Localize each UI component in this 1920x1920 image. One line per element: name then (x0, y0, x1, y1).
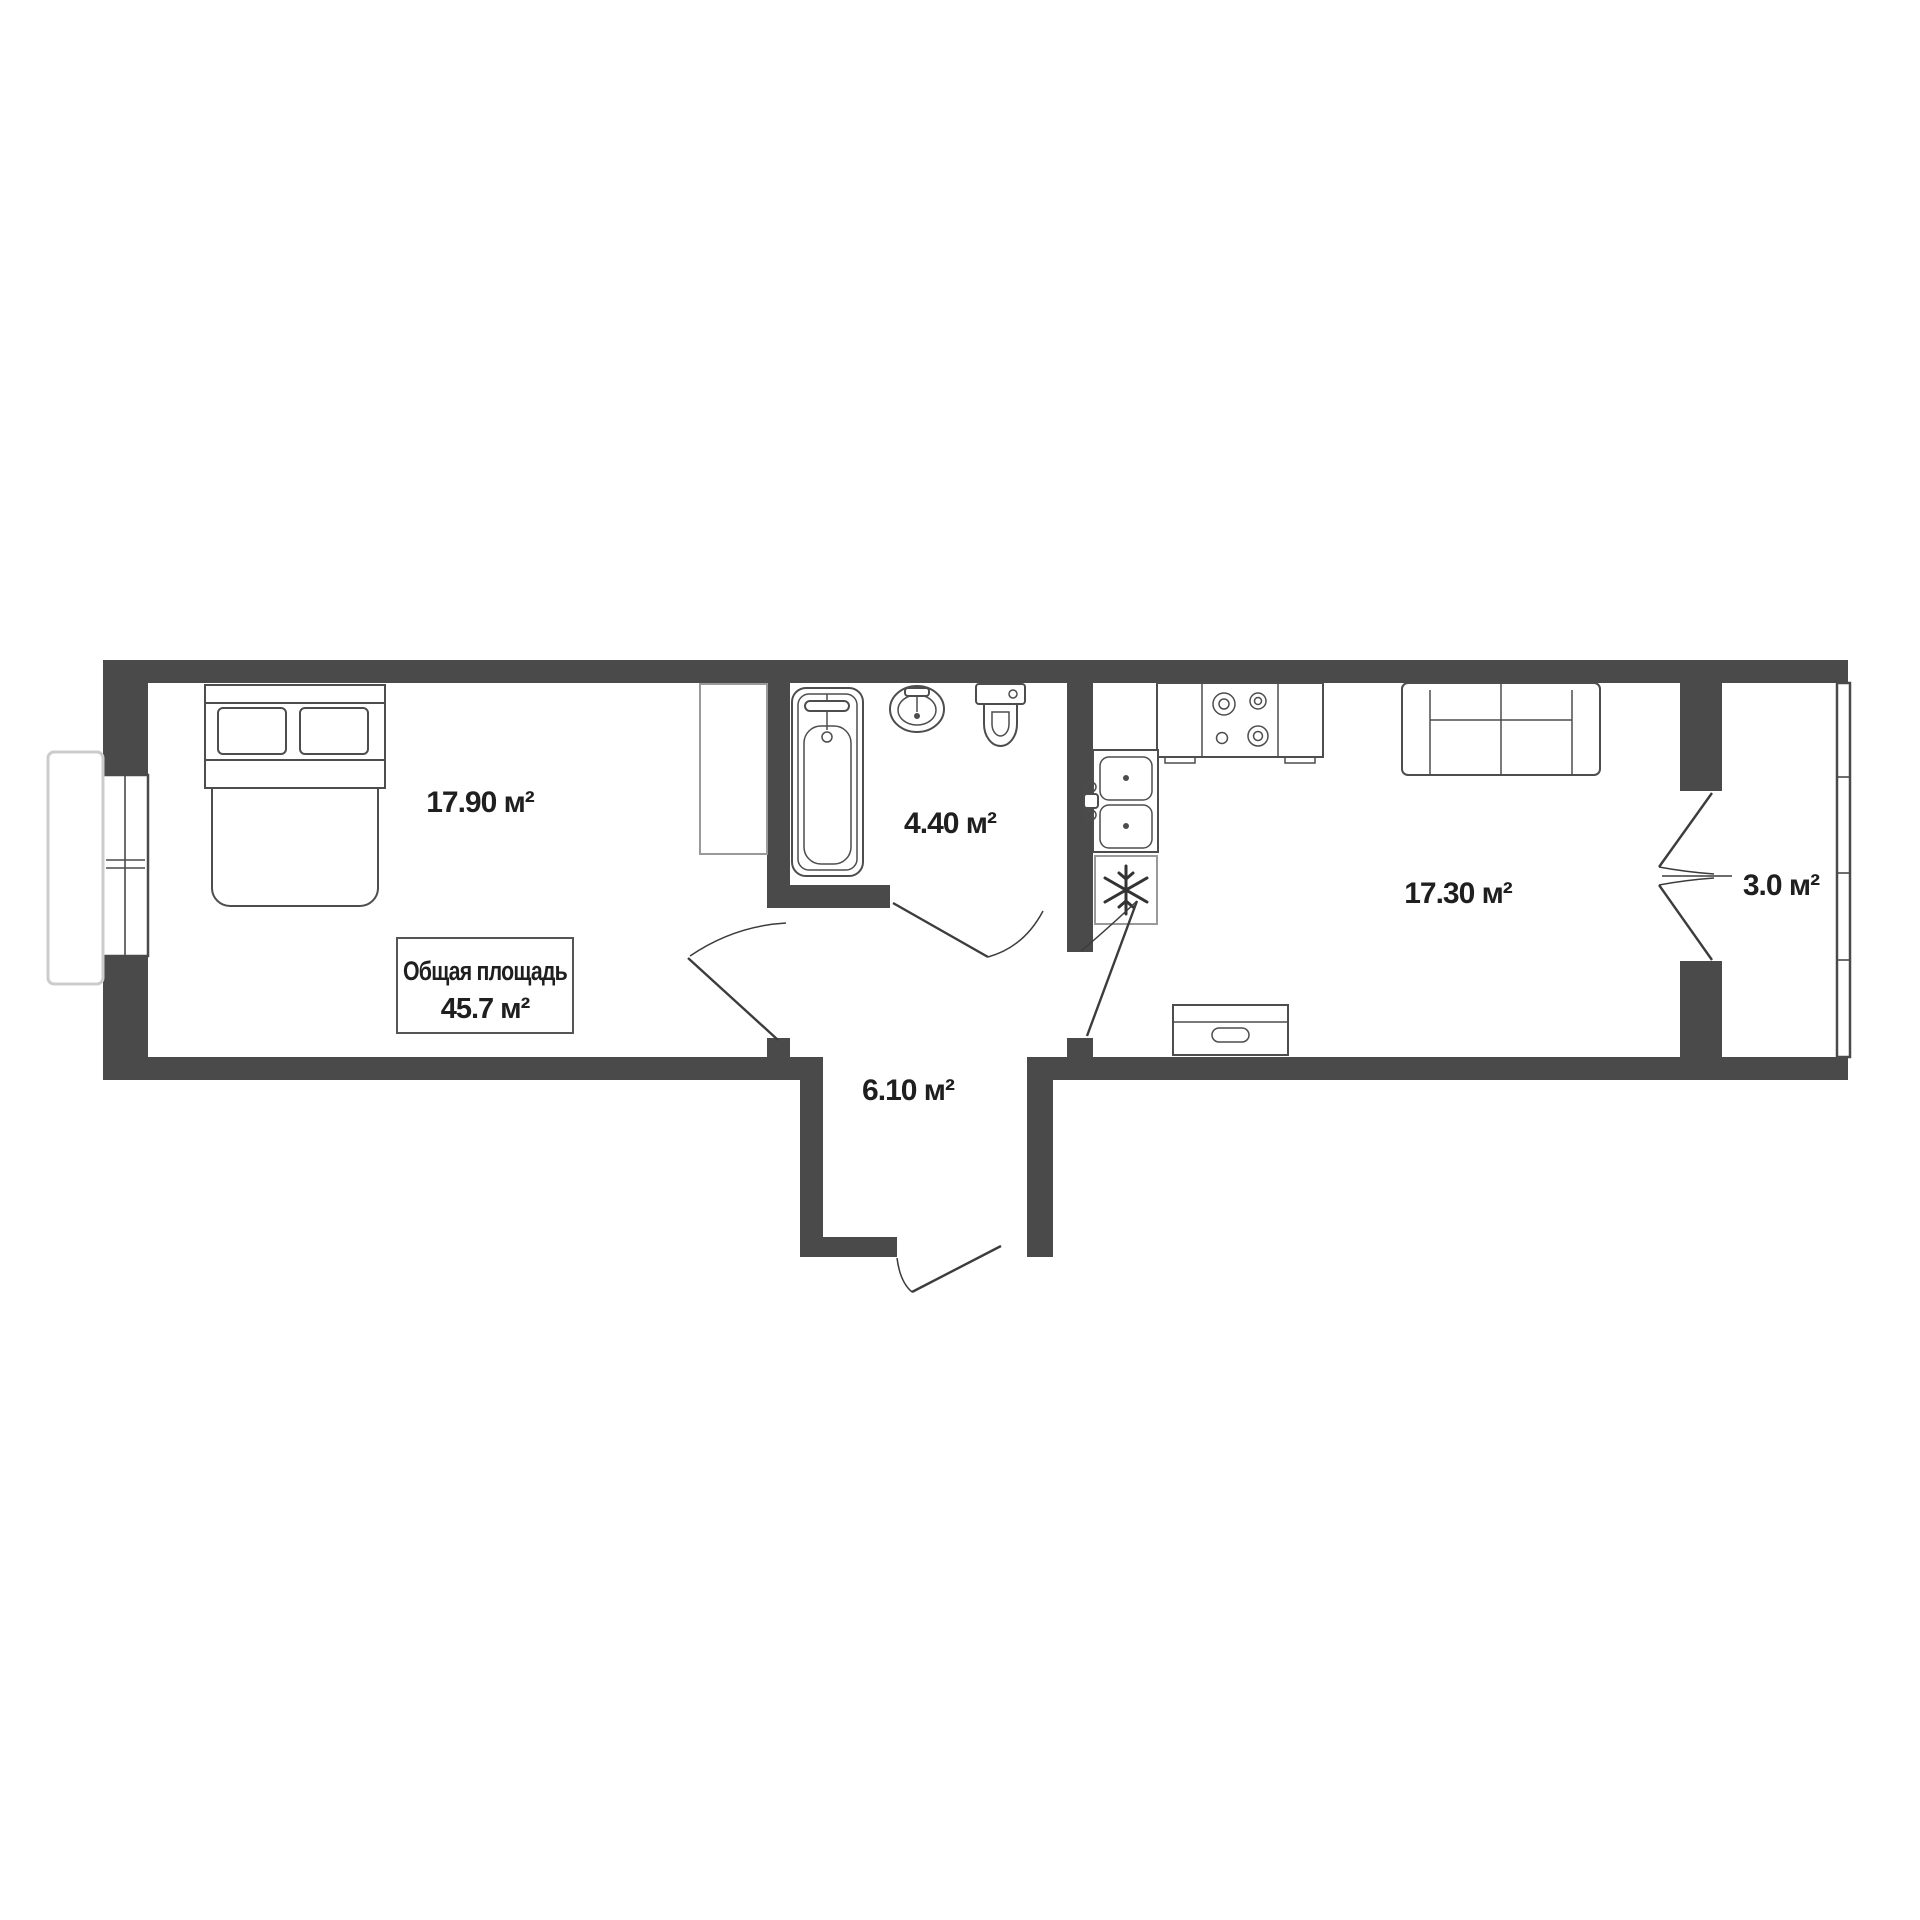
entrance-door (897, 1246, 1001, 1292)
fridge (1095, 856, 1157, 924)
wall-bedroom-door-jamb (767, 1038, 790, 1058)
pillow (218, 708, 286, 754)
wall-left-upper (103, 660, 148, 775)
wall-bottom-right (1027, 1057, 1848, 1080)
bathtub-faucet-icon (805, 701, 849, 711)
balcony-window (1837, 683, 1850, 1057)
wardrobe (700, 684, 767, 854)
floor-plan: 17.90 м² 4.40 м² 6.10 м² 17.30 м² 3.0 м²… (0, 0, 1920, 1920)
bathroom-door (893, 903, 1043, 957)
floor-plan-svg: 17.90 м² 4.40 м² 6.10 м² 17.30 м² 3.0 м²… (0, 0, 1920, 1920)
wall-balcony-stub-lower (1680, 961, 1722, 1080)
bedroom-area-label: 17.90 м² (426, 786, 535, 819)
wall-bathroom-bottom (767, 885, 890, 908)
bedroom-door (688, 923, 786, 1040)
tv-stand (1173, 1005, 1288, 1055)
wall-balcony-stub-upper (1680, 660, 1722, 791)
bathroom-sink (890, 686, 944, 732)
total-area-title: Общая площадь (403, 956, 567, 986)
wall-left-lower (103, 956, 148, 1080)
bathroom-area-label: 4.40 м² (904, 807, 997, 840)
wall-hall-left (800, 1080, 823, 1257)
wall-bottom-left (103, 1057, 823, 1080)
pillow (300, 708, 368, 754)
total-area-box: Общая площадь 45.7 м² (397, 938, 573, 1033)
balcony-ghost-outline (48, 752, 103, 984)
toilet (976, 684, 1025, 746)
wall-hall-bottom-stub (800, 1237, 897, 1257)
sink-faucet-icon (905, 688, 929, 696)
wall-top (103, 660, 1848, 683)
kitchen-sink (1084, 750, 1158, 852)
wall-hall-right (1027, 1080, 1053, 1257)
hallway-area-label: 6.10 м² (862, 1074, 955, 1107)
wall-bedroom-bathroom (767, 660, 790, 908)
balcony-french-door (1659, 793, 1732, 960)
sofa (1402, 683, 1600, 775)
bathtub (792, 688, 863, 876)
kitchen-counter (1157, 683, 1323, 763)
kitchen-living-area-label: 17.30 м² (1404, 877, 1513, 910)
wall-kitchen-door-jamb (1067, 1038, 1093, 1058)
bed (205, 685, 385, 906)
total-area-value: 45.7 м² (441, 993, 531, 1025)
bedroom-window (103, 775, 148, 956)
kitchen-faucet-icon (1084, 794, 1098, 808)
balcony-area-label: 3.0 м² (1743, 869, 1820, 902)
